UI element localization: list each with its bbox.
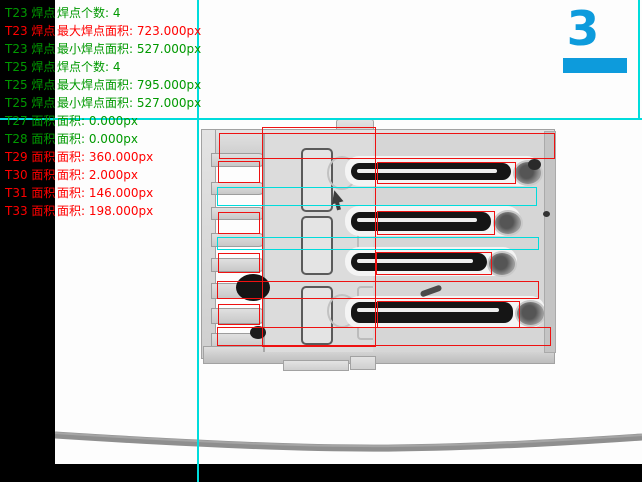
measurement-value: 焊点个数: 4 bbox=[57, 58, 121, 76]
measurement-value: 面积: 0.000px bbox=[57, 112, 138, 130]
tool-label: T25 焊点 bbox=[5, 94, 57, 112]
roi-rect-pin4 bbox=[377, 301, 520, 328]
measurement-value: 面积: 0.000px bbox=[57, 130, 138, 148]
result-line: T23 焊点焊点个数: 4 bbox=[5, 4, 305, 22]
roi-rect-pin2 bbox=[377, 211, 495, 235]
result-line: T25 焊点焊点个数: 4 bbox=[5, 58, 305, 76]
measurement-value: 面积: 146.000px bbox=[57, 184, 153, 202]
dark-speck bbox=[528, 159, 541, 170]
station-number-underline bbox=[563, 58, 627, 73]
measurement-value: 面积: 2.000px bbox=[57, 166, 138, 184]
measurement-value: 最小焊点面积: 527.000px bbox=[57, 94, 201, 112]
measurement-value: 最小焊点面积: 527.000px bbox=[57, 40, 201, 58]
tool-label: T23 焊点 bbox=[5, 22, 57, 40]
tool-label: T23 焊点 bbox=[5, 4, 57, 22]
tool-label: T31 面积 bbox=[5, 184, 57, 202]
connector-bottom-tab bbox=[350, 356, 376, 370]
result-line: T30 面积面积: 2.000px bbox=[5, 166, 305, 184]
result-line: T25 焊点最小焊点面积: 527.000px bbox=[5, 94, 305, 112]
tool-label: T23 焊点 bbox=[5, 40, 57, 58]
station-number: 3 bbox=[556, 4, 610, 56]
tray-edge-curve bbox=[55, 425, 642, 470]
roi-rect-mid-band bbox=[217, 281, 539, 299]
dark-speck bbox=[543, 211, 550, 217]
measurement-value: 最大焊点面积: 723.000px bbox=[57, 22, 201, 40]
tool-label: T33 面积 bbox=[5, 202, 57, 220]
contact-pad bbox=[493, 210, 523, 236]
tool-label: T27 面积 bbox=[5, 112, 57, 130]
result-line: T31 面积面积: 146.000px bbox=[5, 184, 305, 202]
tool-label: T30 面积 bbox=[5, 166, 57, 184]
result-line: T23 焊点最小焊点面积: 527.000px bbox=[5, 40, 305, 58]
result-line: T27 面积面积: 0.000px bbox=[5, 112, 305, 130]
result-line: T28 面积面积: 0.000px bbox=[5, 130, 305, 148]
roi-rect-small bbox=[218, 304, 260, 325]
roi-rect-pin1 bbox=[377, 162, 516, 184]
tool-label: T29 面积 bbox=[5, 148, 57, 166]
result-line: T23 焊点最大焊点面积: 723.000px bbox=[5, 22, 305, 40]
tool-label: T25 焊点 bbox=[5, 76, 57, 94]
measurement-value: 面积: 198.000px bbox=[57, 202, 153, 220]
connector-right-edge bbox=[544, 131, 556, 353]
tool-label: T28 面积 bbox=[5, 130, 57, 148]
measurement-value: 焊点个数: 4 bbox=[57, 4, 121, 22]
tool-label: T25 焊点 bbox=[5, 58, 57, 76]
roi-rect-pin3 bbox=[376, 252, 492, 275]
result-line: T33 面积面积: 198.000px bbox=[5, 202, 305, 220]
inspection-viewport: T23 焊点焊点个数: 4 T23 焊点最大焊点面积: 723.000px T2… bbox=[0, 0, 642, 482]
roi-rect-bottom-band bbox=[217, 327, 551, 346]
result-line: T29 面积面积: 360.000px bbox=[5, 148, 305, 166]
roi-rect-small bbox=[218, 253, 260, 273]
measurement-result-panel: T23 焊点焊点个数: 4 T23 焊点最大焊点面积: 723.000px T2… bbox=[5, 4, 305, 220]
measurement-value: 最大焊点面积: 795.000px bbox=[57, 76, 201, 94]
roi-rect-cyan-gap2 bbox=[217, 237, 539, 250]
crosshair-vertical-right bbox=[638, 0, 640, 119]
connector-bottom-tab bbox=[283, 360, 349, 371]
result-line: T25 焊点最大焊点面积: 795.000px bbox=[5, 76, 305, 94]
measurement-value: 面积: 360.000px bbox=[57, 148, 153, 166]
